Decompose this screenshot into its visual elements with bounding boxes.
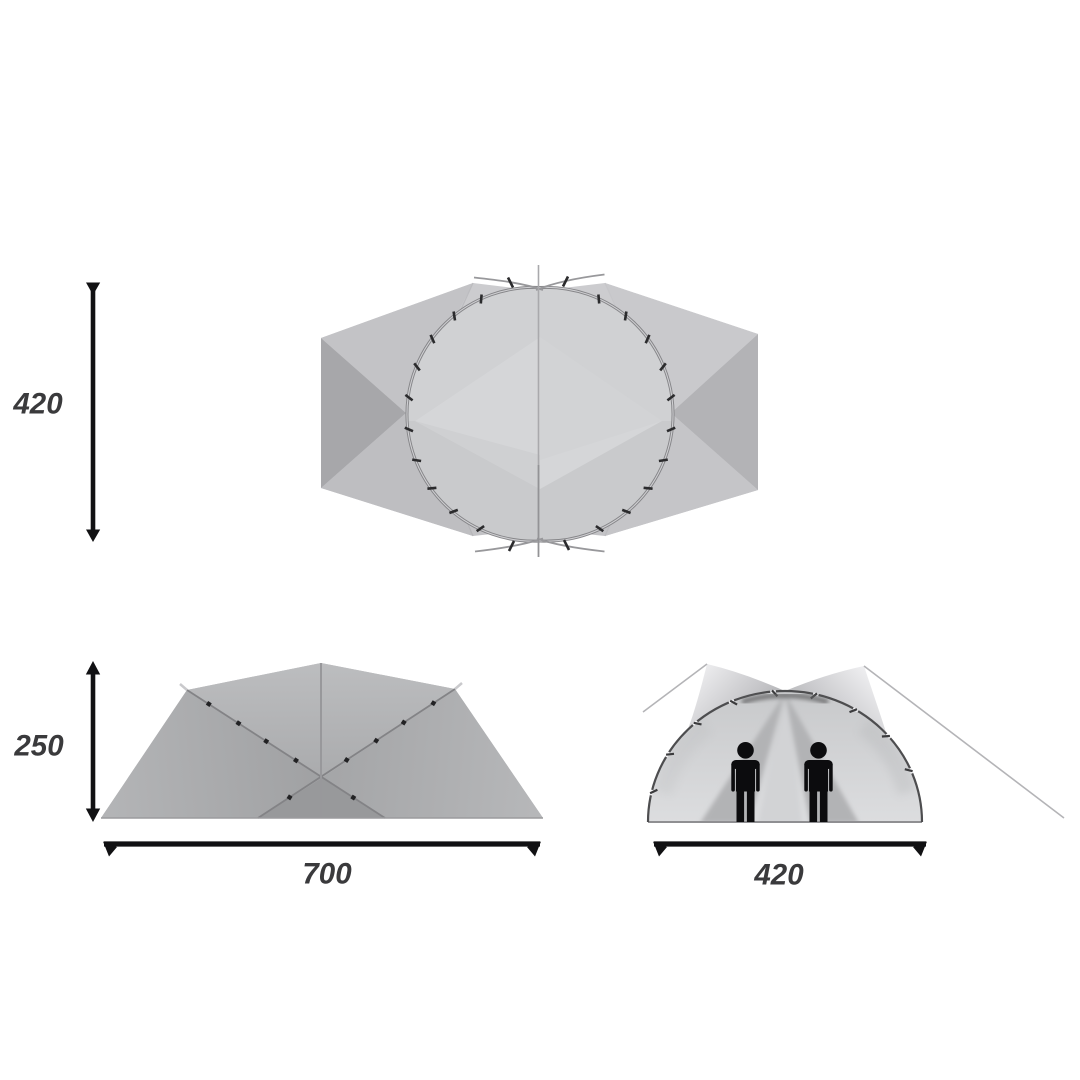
svg-text:420: 420 — [12, 388, 63, 421]
svg-text:700: 700 — [302, 858, 352, 891]
svg-text:250: 250 — [13, 730, 64, 763]
svg-text:420: 420 — [753, 859, 804, 892]
